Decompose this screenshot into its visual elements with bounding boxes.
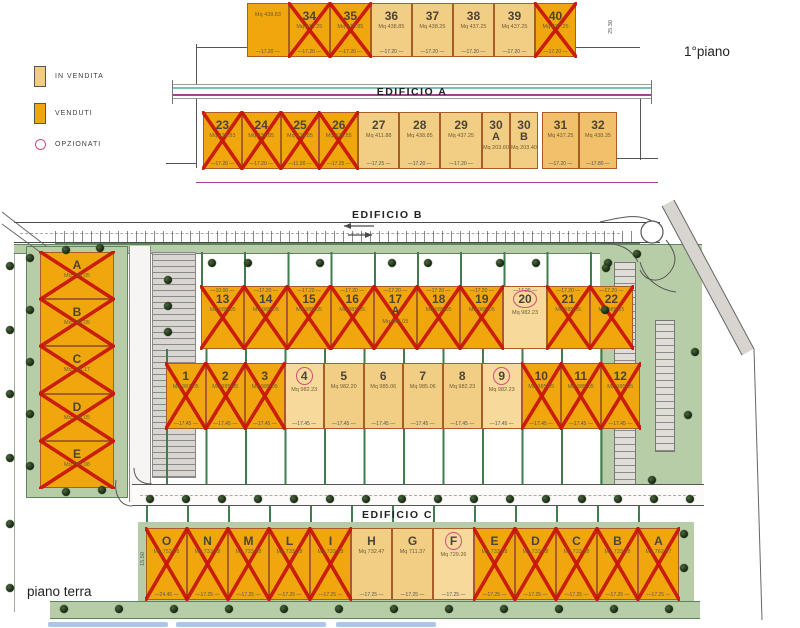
lot-area-label: Mq 203.40	[511, 145, 537, 151]
lot-19: 17.2019Mq 985.05	[460, 286, 503, 349]
tree-icon	[6, 262, 14, 270]
lot-number: N	[203, 535, 212, 547]
lot-area-label: Mq 733.28	[318, 549, 344, 555]
legend-opzionati-label: OPZIONATI	[55, 141, 101, 148]
dimension-line	[576, 47, 640, 48]
edificio-a-lower-row: 23Mq 438.8317.2024Mq 438.8517.2025Mq 438…	[203, 112, 617, 169]
dimension-label: 17.45	[523, 421, 561, 427]
dimension-label: 17.25	[359, 161, 398, 167]
lot-area-label: Mq 733.28	[195, 549, 221, 555]
garden-dividers-middle	[166, 349, 640, 363]
lot-number: 34	[303, 10, 316, 22]
lot-13: 10.0013Mq 985.05	[201, 286, 244, 349]
dimension-label: 17.20	[248, 49, 288, 55]
lot-number: 38	[467, 10, 480, 22]
lot-A: AMq 795.05	[40, 252, 114, 299]
lot-34: 34Mq 437.2517.20	[289, 3, 330, 57]
lot-C: CMq 795.17	[40, 346, 114, 393]
edificio-c-label: EDIFICIO C	[362, 509, 433, 521]
lot-31: 31Mq 437.2517.20	[542, 112, 579, 169]
lot-4: 4Mq 982.2317.45	[285, 363, 325, 429]
dimension-label: 17.20	[400, 161, 439, 167]
lot-39: 39Mq 437.2517.20	[494, 3, 535, 57]
vertical-dimension-label: 15.50	[140, 552, 146, 566]
lot-number: A	[654, 535, 663, 547]
dimension-label: 17.25	[557, 592, 596, 598]
lot-D: DMq 733.2817.25	[515, 528, 556, 600]
dimension-line-magenta	[196, 182, 658, 183]
lot-number: 15	[302, 293, 315, 305]
venduti-swatch	[34, 103, 46, 124]
lot-number: 24	[255, 119, 268, 131]
lot-area-label: Mq 985.05	[568, 384, 594, 390]
lot-28: 28Mq 438.8517.20	[399, 112, 440, 169]
dimension-label: 17.45	[404, 421, 442, 427]
vertical-dimension-label: 25.30	[608, 20, 614, 34]
legend-venduti-label: VENDUTI	[55, 110, 93, 117]
lot-area-label: Mq 795.08	[64, 462, 90, 468]
lot-I: IMq 733.2817.25	[310, 528, 351, 600]
dimension-label: 11.00	[282, 161, 319, 167]
lot-area-label: Mq 762.97	[646, 549, 672, 555]
lot-number: 22	[605, 293, 618, 305]
lot-number: H	[367, 535, 376, 547]
ring-road-lane-divider	[140, 495, 696, 496]
lot-C: CMq 733.2817.25	[556, 528, 597, 600]
lot-N: NMq 733.2817.25	[187, 528, 228, 600]
lot-B: BMq 795.05	[40, 299, 114, 346]
lot-area-label: Mq 438.85	[337, 24, 363, 30]
lot-area-label: Mq 733.28	[277, 549, 303, 555]
lot-number: 2	[222, 370, 229, 382]
lot-24: 24Mq 438.8517.20	[242, 112, 281, 169]
dimension-label: 17.20	[495, 49, 534, 55]
lot-15: 17.2015Mq 985.05	[287, 286, 330, 349]
internal-road-left	[129, 246, 151, 502]
lot-6: 6Mq 985.0617.45	[364, 363, 404, 429]
lot-area-label: Mq 438.83	[209, 133, 235, 139]
dimension-label: 17.25	[516, 592, 555, 598]
dimension-label: 17.25	[311, 592, 350, 598]
lot-number: D	[73, 401, 82, 413]
lot-number: 19	[475, 293, 488, 305]
edificio-b-left-column: AMq 795.05BMq 795.05CMq 795.17DMq 795.05…	[40, 252, 114, 488]
dimension-label: 17.25	[352, 592, 391, 598]
dimension-label: 17.80	[580, 161, 616, 167]
lot-number: 28	[413, 119, 426, 131]
lot-L: LMq 733.2817.25	[269, 528, 310, 600]
lot-number: 25	[293, 119, 306, 131]
lot-area-label: Mq 985.05	[212, 384, 238, 390]
lot-number: E	[490, 535, 498, 547]
lot-area-label: Mq 795.05	[64, 320, 90, 326]
lot-number: 5	[340, 370, 347, 382]
lot-area-label: Mq 795.17	[64, 367, 90, 373]
lot-number: 4	[296, 367, 313, 385]
lot-area-label: Mq 437.25	[543, 24, 569, 30]
lot-number: 23	[216, 119, 229, 131]
lot-area-label: Mq 438.85	[407, 133, 433, 139]
lot-26: 26Mq 438.8517.25	[319, 112, 358, 169]
lot-21: 17.2021Mq 985.05	[547, 286, 590, 349]
lot-area-label: Mq 753.48	[154, 549, 180, 555]
dimension-label: 17.45	[365, 421, 403, 427]
lot-number: 3	[261, 370, 268, 382]
dimension-label: 17.20	[536, 49, 575, 55]
lot-32: 32Mq 438.3517.80	[579, 112, 617, 169]
dimension-label: 17.25	[393, 592, 432, 598]
corridor-endcap-right	[651, 80, 652, 104]
lot-area-label: Mq 437.25	[547, 133, 573, 139]
tree-icon	[6, 584, 14, 592]
lot-30A: 30AMq 203.60	[482, 112, 510, 169]
lot-number: 1	[182, 370, 189, 382]
lot-area-label: Mq 982.23	[449, 384, 475, 390]
dimension-line	[166, 163, 196, 164]
lot-unlabeled: Mq 438.8317.20	[247, 3, 289, 57]
dimension-label: 17.45	[444, 421, 482, 427]
lot-35: 35Mq 438.8517.20	[330, 3, 371, 57]
dimension-label: 17.20	[413, 49, 452, 55]
lot-area-label: Mq 985.05	[296, 307, 322, 313]
lot-number: 6	[380, 370, 387, 382]
lot-number: O	[162, 535, 171, 547]
lot-number: D	[531, 535, 540, 547]
lot-number: C	[572, 535, 581, 547]
lot-H: HMq 732.4717.25	[351, 528, 392, 600]
lot-number: G	[408, 535, 417, 547]
lot-5: 5Mq 982.2017.45	[324, 363, 364, 429]
legend-in-vendita-label: IN VENDITA	[55, 73, 104, 80]
tree-icon	[6, 390, 14, 398]
lot-1: 1Mq 987.0517.45	[166, 363, 206, 429]
lot-number: 21	[562, 293, 575, 305]
lot-area-label: Mq 729.26	[441, 552, 467, 558]
edificio-a-label: EDIFICIO A	[377, 86, 448, 98]
corridor-endcap-left	[172, 80, 173, 104]
lot-B: BMq 733.2817.25	[597, 528, 638, 600]
lot-area-label: Mq 438.35	[585, 133, 611, 139]
lot-G: GMq 711.3717.25	[392, 528, 433, 600]
lot-F: FMq 729.2617.25	[433, 528, 474, 600]
lot-number: M	[244, 535, 254, 547]
lot-number: A	[73, 259, 82, 271]
lot-area-label: Mq 795.05	[64, 273, 90, 279]
lot-18: 17.2018Mq 985.05	[417, 286, 460, 349]
lot-area-label: Mq 711.37	[400, 549, 426, 555]
in-vendita-swatch	[34, 66, 46, 87]
lot-number: 30B	[517, 119, 530, 143]
lot-area-label: Mq 203.60	[483, 145, 509, 151]
lot-23: 23Mq 438.8317.20	[203, 112, 242, 169]
lot-area-label: Mq 438.83	[255, 12, 281, 18]
dimension-label: 17.25	[598, 592, 637, 598]
dimension-label: 17.25	[475, 592, 514, 598]
dimension-label: 17.20	[454, 49, 493, 55]
lot-number: 27	[372, 119, 385, 131]
lot-7: 7Mq 985.0617.45	[403, 363, 443, 429]
lot-area-label: Mq 733.28	[523, 549, 549, 555]
lot-37: 37Mq 438.2517.20	[412, 3, 453, 57]
lot-20: 17.2020Mq 982.23	[503, 286, 546, 349]
lot-29: 29Mq 437.2517.20	[440, 112, 482, 169]
lot-number: 20	[513, 290, 536, 308]
lot-number: 10	[535, 370, 548, 382]
tree-icon	[6, 454, 14, 462]
lot-number: F	[445, 532, 462, 550]
lot-11: 11Mq 985.0517.45	[561, 363, 601, 429]
lot-area-label: Mq 438.85	[378, 24, 404, 30]
dimension-label: 17.45	[325, 421, 363, 427]
dimension-label: 17.45	[246, 421, 284, 427]
dimension-line	[617, 158, 658, 159]
lot-10: 10Mq 985.0517.45	[522, 363, 562, 429]
lot-27: 27Mq 411.8817.25	[358, 112, 399, 169]
lot-number: 14	[259, 293, 272, 305]
lot-number: 9	[493, 367, 510, 385]
floor-label-first-floor: 1°piano	[684, 44, 730, 59]
dimension-label: 17.25	[639, 592, 678, 598]
lot-number: C	[73, 353, 82, 365]
lot-number: 32	[591, 119, 604, 131]
lot-17A: 17.2017AMq 985.05	[374, 286, 417, 349]
lot-area-label: Mq 733.28	[605, 549, 631, 555]
dimension-label: 17.20	[543, 161, 578, 167]
dimension-label: 17.25	[188, 592, 227, 598]
parking-strip-right-2	[655, 320, 675, 452]
lot-number: B	[73, 306, 82, 318]
lot-2: 2Mq 985.0517.45	[206, 363, 246, 429]
lot-area-label: Mq 437.25	[460, 24, 486, 30]
lot-area-label: Mq 985.05	[469, 307, 495, 313]
lot-40: 40Mq 437.2517.20	[535, 3, 576, 57]
lot-area-label: Mq 732.47	[359, 549, 385, 555]
lot-3: 3Mq 985.0517.45	[245, 363, 285, 429]
lot-O: OMq 753.4824.45	[146, 528, 187, 600]
tree-icon	[6, 326, 14, 334]
dimension-label: 17.25	[434, 592, 473, 598]
site-boundary-line	[14, 248, 15, 612]
lot-area-label: Mq 985.05	[555, 307, 581, 313]
lot-number: 7	[419, 370, 426, 382]
lot-number: 18	[432, 293, 445, 305]
dimension-label: 17.20	[441, 161, 481, 167]
opzionati-circle-icon	[35, 139, 46, 150]
lot-area-label: Mq 733.28	[564, 549, 590, 555]
lot-number: 29	[454, 119, 467, 131]
dimension-label: 17.20	[243, 161, 280, 167]
lot-area-label: Mq 987.05	[173, 384, 199, 390]
dimension-label: 24.45	[147, 592, 186, 598]
dimension-label: 17.20	[204, 161, 241, 167]
lot-area-label: Mq 985.06	[370, 384, 396, 390]
lot-area-label: Mq 985.05	[607, 384, 633, 390]
lot-area-label: Mq 411.88	[366, 133, 392, 139]
edificio-c-row: OMq 753.4824.45NMq 733.2817.25MMq 733.28…	[146, 528, 679, 600]
edificio-b-lower-row: 1Mq 987.0517.452Mq 985.0517.453Mq 985.05…	[166, 363, 640, 429]
lot-number: 37	[426, 10, 439, 22]
lot-number: 36	[385, 10, 398, 22]
lot-area-label: Mq 438.85	[326, 133, 352, 139]
lot-D: DMq 795.05	[40, 394, 114, 441]
in-vendita-swatch-icon	[34, 66, 46, 87]
lot-area-label: Mq 985.05	[339, 307, 365, 313]
lot-14: 17.2014Mq 985.05	[244, 286, 287, 349]
lot-36: 36Mq 438.8517.20	[371, 3, 412, 57]
lot-number: 26	[332, 119, 345, 131]
edificio-b-upper-row: 10.0013Mq 985.0517.2014Mq 985.0517.2015M…	[201, 286, 633, 349]
lot-area-label: Mq 982.23	[512, 310, 538, 316]
lot-area-label: Mq 438.85	[287, 133, 313, 139]
lot-number: 31	[554, 119, 567, 131]
lot-number: 16	[346, 293, 359, 305]
edificio-a-corridor: EDIFICIO A	[172, 84, 652, 99]
lot-area-label: Mq 982.20	[331, 384, 357, 390]
lot-number: 40	[549, 10, 562, 22]
lot-number: 8	[459, 370, 466, 382]
lot-E: EMq 733.2817.25	[474, 528, 515, 600]
lot-number: L	[286, 535, 293, 547]
lot-area-label: Mq 985.05	[210, 307, 236, 313]
dimension-label: 17.45	[602, 421, 640, 427]
lot-number: 17A	[389, 293, 402, 317]
lot-number: 13	[216, 293, 229, 305]
lot-number: E	[73, 448, 81, 460]
lot-number: 11	[574, 370, 587, 382]
real-estate-site-plan: IN VENDITA VENDUTI OPZIONATI 1°piano pia…	[0, 0, 800, 628]
lot-number: 30A	[489, 119, 502, 143]
lot-38: 38Mq 437.2517.20	[453, 3, 494, 57]
lot-9: 9Mq 982.2317.45	[482, 363, 522, 429]
dimension-label: 17.20	[331, 49, 370, 55]
lot-area-label: Mq 982.23	[291, 387, 317, 393]
lot-number: B	[613, 535, 622, 547]
lot-area-label: Mq 985.05	[252, 384, 278, 390]
dimension-label: 17.25	[229, 592, 268, 598]
dimension-label: 17.45	[286, 421, 324, 427]
lot-22: 17.2022Mq 985.05	[590, 286, 633, 349]
cropped-caption-fragment	[176, 622, 326, 627]
dimension-label: 17.45	[483, 421, 521, 427]
dimension-label: 17.45	[207, 421, 245, 427]
lot-area-label: Mq 985.05	[598, 307, 624, 313]
lot-area-label: Mq 985.05	[426, 307, 452, 313]
lot-area-label: Mq 438.85	[248, 133, 274, 139]
roadside-parking-stalls	[55, 231, 640, 244]
edificio-a-upper-row: Mq 438.8317.2034Mq 437.2517.2035Mq 438.8…	[247, 3, 576, 57]
lot-area-label: Mq 733.28	[236, 549, 262, 555]
edificio-b-label: EDIFICIO B	[352, 209, 423, 221]
lot-area-label: Mq 985.05	[253, 307, 279, 313]
venduti-swatch-icon	[34, 103, 46, 124]
lot-area-label: Mq 985.05	[528, 384, 554, 390]
lot-number: 12	[614, 370, 627, 382]
lot-number: I	[329, 535, 332, 547]
lot-number: 39	[508, 10, 521, 22]
dimension-label: 17.45	[562, 421, 600, 427]
lot-area-label: Mq 437.25	[501, 24, 527, 30]
lot-8: 8Mq 982.2317.45	[443, 363, 483, 429]
cropped-caption-fragment	[336, 622, 436, 627]
lot-12: 12Mq 985.0517.45	[601, 363, 641, 429]
cropped-caption-fragment	[48, 622, 168, 627]
lot-area-label: Mq 985.06	[410, 384, 436, 390]
lot-area-label: Mq 438.25	[419, 24, 445, 30]
tree-icon	[6, 520, 14, 528]
lot-area-label: Mq 733.28	[482, 549, 508, 555]
garden-dividers-lower	[166, 429, 640, 484]
lot-M: MMq 733.2817.25	[228, 528, 269, 600]
lot-25: 25Mq 438.8511.00	[281, 112, 320, 169]
dimension-label: 17.20	[290, 49, 329, 55]
green-strip-bottom	[50, 601, 700, 619]
lot-E: EMq 795.08	[40, 441, 114, 488]
dimension-label: 17.45	[167, 421, 205, 427]
lot-area-label: Mq 985.05	[382, 319, 408, 325]
lot-number: 35	[344, 10, 357, 22]
floor-label-ground-floor: piano terra	[27, 584, 92, 599]
dimension-label: 17.25	[320, 161, 357, 167]
lot-16: 17.2016Mq 985.05	[331, 286, 374, 349]
lot-30B: 30BMq 203.40	[510, 112, 538, 169]
garden-dividers-upper	[201, 252, 633, 286]
lot-A: AMq 762.9717.25	[638, 528, 679, 600]
dimension-line	[196, 47, 247, 48]
lot-area-label: Mq 982.23	[489, 387, 515, 393]
lot-area-label: Mq 795.05	[64, 415, 90, 421]
dimension-line	[196, 44, 197, 168]
lot-area-label: Mq 437.25	[296, 24, 322, 30]
dimension-label: 17.20	[372, 49, 411, 55]
lot-area-label: Mq 437.25	[448, 133, 474, 139]
dimension-label: 17.25	[270, 592, 309, 598]
